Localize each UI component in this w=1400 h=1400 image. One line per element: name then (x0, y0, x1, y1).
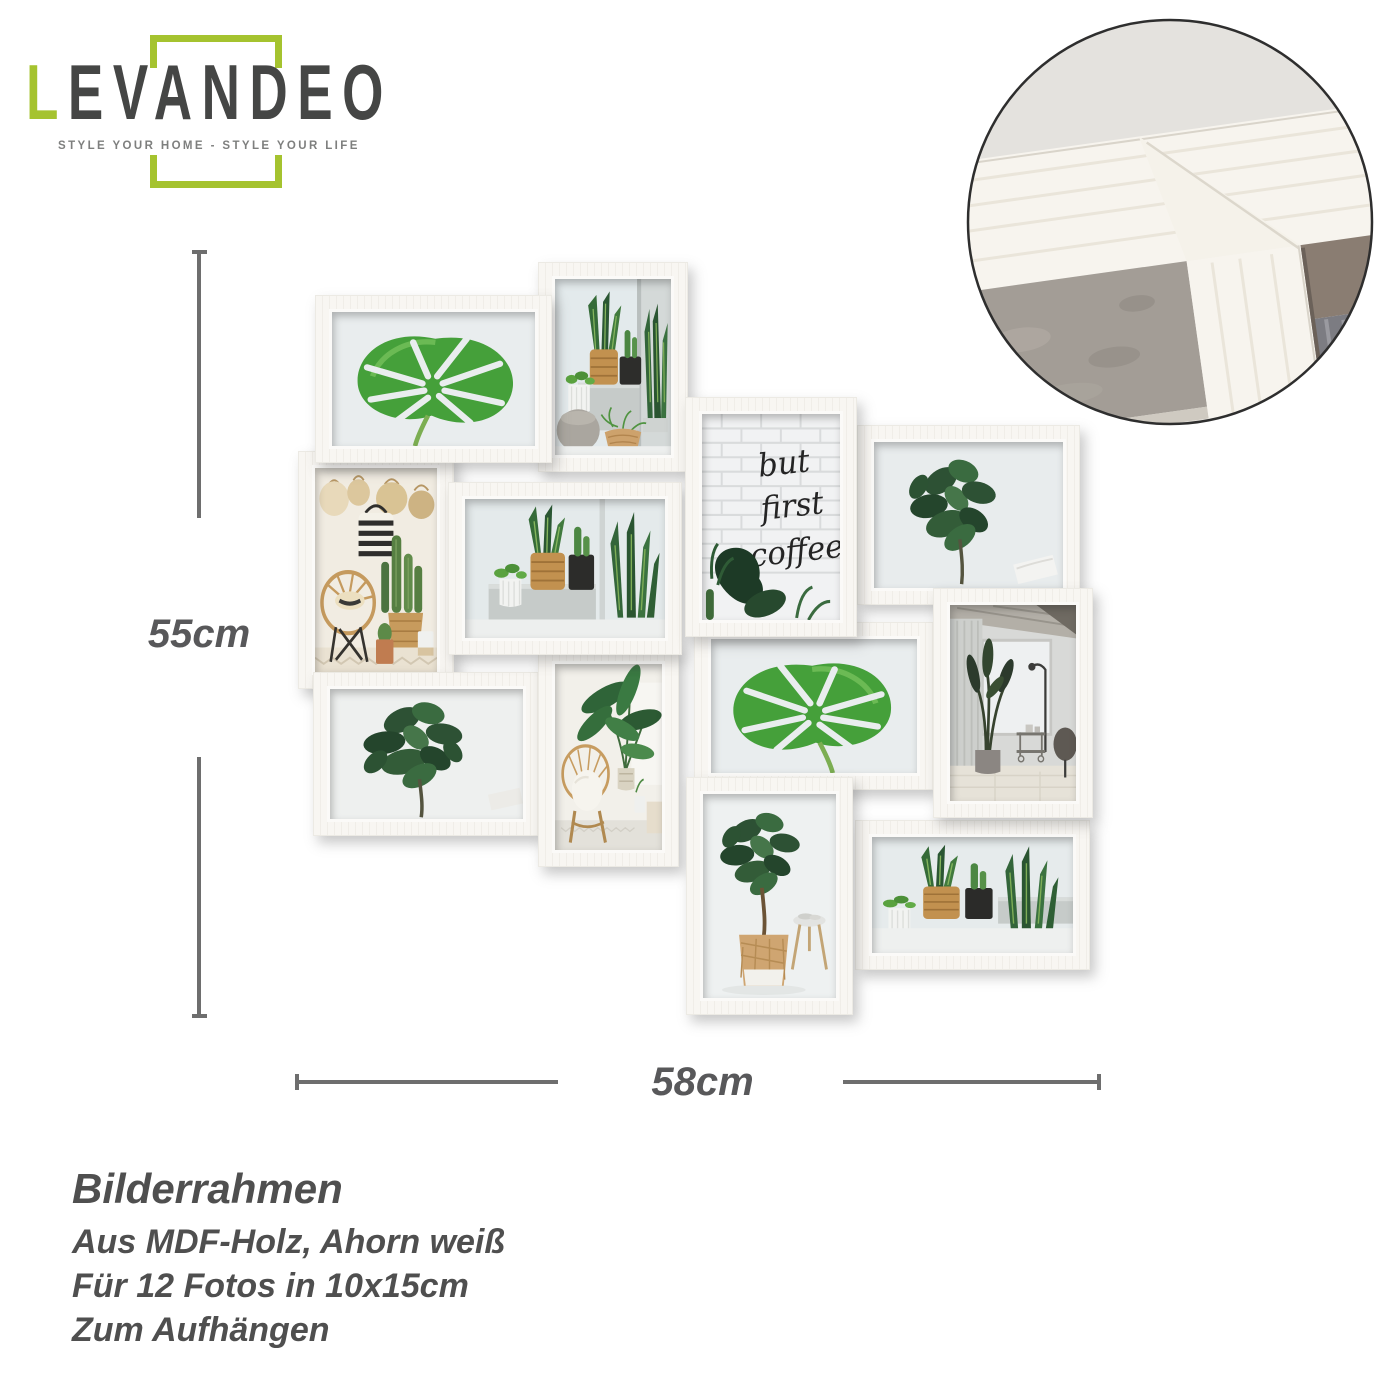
photo-potted-plants (462, 496, 668, 641)
brand-name-rest: EVANDEO (68, 48, 393, 136)
product-line-mounting: Zum Aufhängen (72, 1308, 505, 1352)
photo-plant-in-basket (700, 791, 839, 1001)
photo-frame-1 (315, 295, 552, 463)
brand-logo: LEVANDEO STYLE YOUR HOME - STYLE YOUR LI… (26, 28, 398, 190)
horizontal-dimension-cap-right (1097, 1074, 1101, 1090)
horizontal-dimension-line-left (295, 1080, 558, 1084)
brand-tagline: STYLE YOUR HOME - STYLE YOUR LIFE (58, 140, 360, 152)
picture-frame-collage: but first coffee (296, 260, 1093, 1010)
photo-monstera-leaf-2 (708, 636, 920, 776)
coffee-word-2: first (757, 485, 826, 529)
product-info: Bilderrahmen Aus MDF-Holz, Ahorn weiß Fü… (72, 1164, 505, 1352)
photo-shelf-plants (552, 276, 674, 458)
vertical-dimension-line-upper (197, 250, 201, 518)
photo-frame-12 (855, 820, 1090, 970)
photo-frame-9 (694, 622, 934, 790)
photo-frame-4 (448, 482, 682, 655)
vertical-dimension-cap-bottom (192, 1014, 207, 1018)
photo-snake-plants (869, 834, 1076, 956)
photo-fiddle-leaf-bush (327, 686, 526, 822)
photo-coffee-lettering: but first coffee (699, 411, 843, 623)
photo-monstera-leaf (329, 309, 538, 449)
photo-fiddle-leaf (871, 439, 1066, 591)
brand-name: LEVANDEO (26, 52, 393, 132)
horizontal-dimension-line-right (843, 1080, 1100, 1084)
coffee-word-1: but (756, 443, 811, 485)
product-line-capacity: Für 12 Fotos in 10x15cm (72, 1264, 505, 1308)
photo-frame-2 (538, 262, 688, 472)
width-dimension-label: 58cm (630, 1060, 775, 1105)
photo-peacock-chair (552, 661, 665, 853)
product-title: Bilderrahmen (72, 1164, 505, 1214)
photo-frame-8 (538, 647, 679, 867)
brand-name-accent-letter: L (26, 48, 68, 136)
logo-bracket-bottom-icon (150, 155, 282, 188)
photo-frame-11 (686, 777, 853, 1015)
photo-frame-7 (313, 672, 540, 836)
height-dimension-label: 55cm (144, 612, 254, 657)
photo-frame-3 (298, 451, 454, 689)
vertical-dimension-line-lower (197, 757, 201, 1017)
product-line-material: Aus MDF-Holz, Ahorn weiß (72, 1220, 505, 1264)
photo-frame-5: but first coffee (685, 397, 857, 637)
photo-frame-6 (857, 425, 1080, 605)
photo-baskets-and-chair (312, 465, 440, 675)
photo-bright-room (947, 602, 1079, 804)
photo-frame-10 (933, 588, 1093, 818)
